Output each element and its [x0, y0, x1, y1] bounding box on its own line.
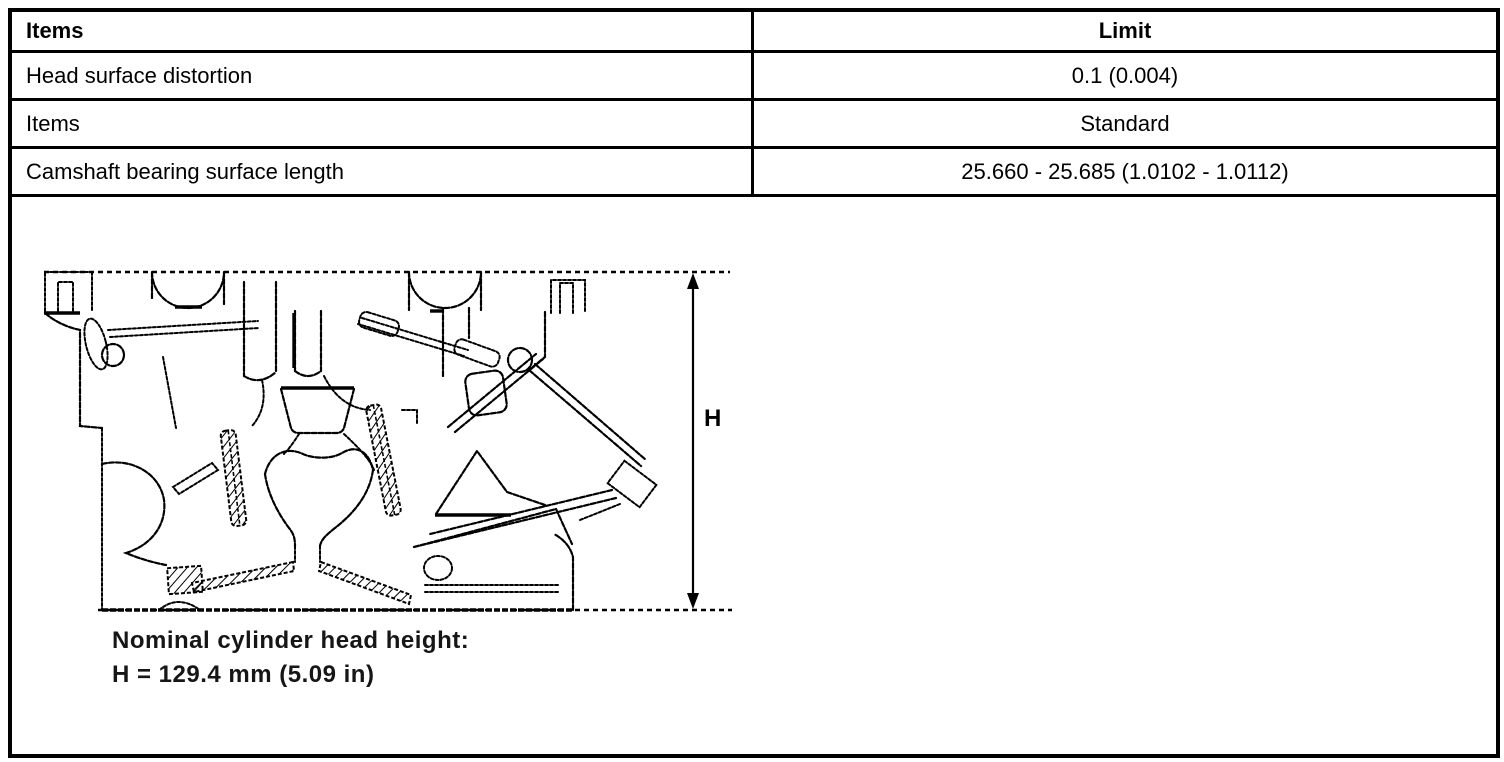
cylinder-head-cross-section-drawing: H [40, 258, 750, 620]
left-bracket [45, 272, 92, 311]
height-dimension: H [687, 273, 721, 609]
runner-outline [414, 509, 573, 610]
valve-guide-left [220, 430, 247, 527]
right-bracket-slot [560, 283, 573, 313]
dimension-arrow-down-icon [687, 593, 699, 609]
table-row: Items Standard [12, 101, 1496, 149]
lower-port-left [167, 566, 203, 594]
valve-guide-right [365, 404, 401, 517]
table-cell-value: Standard [754, 101, 1496, 146]
chamber-rim [265, 449, 373, 474]
guide-step [402, 410, 417, 424]
port-outer-wall [529, 364, 646, 466]
chamber-walls [265, 470, 373, 546]
tappet-bore [281, 389, 354, 433]
table-row: Head surface distortion 0.1 (0.004) [12, 53, 1496, 101]
spring-pocket-right [409, 272, 481, 310]
runner-boss [424, 556, 452, 580]
table-cell-item: Head surface distortion [12, 53, 754, 98]
left-profile [45, 313, 102, 428]
valve-throat [295, 546, 320, 562]
right-bracket [551, 280, 585, 313]
table-header-limit: Limit [754, 12, 1496, 50]
valve-seat-left [192, 562, 294, 592]
bolt-hole-left [102, 344, 124, 366]
runner-floor [425, 585, 558, 592]
oil-passage-right [453, 338, 502, 369]
plug-tube-right [295, 311, 321, 376]
table-cell-item: Camshaft bearing surface length [12, 149, 754, 194]
dimension-arrow-up-icon [687, 273, 699, 289]
caption-line-2: H = 129.4 mm (5.09 in) [112, 658, 469, 692]
water-jacket-sliver [173, 463, 218, 494]
plug-tube-left [244, 282, 276, 380]
upper-rib-right [358, 318, 468, 356]
spring-pocket-left [152, 272, 224, 308]
spec-table: Items Limit Head surface distortion 0.1 … [12, 12, 1496, 197]
left-bracket-slot [58, 282, 73, 311]
figure-caption: Nominal cylinder head height: H = 129.4 … [112, 624, 469, 692]
table-cell-value: 25.660 - 25.685 (1.0102 - 1.0112) [754, 149, 1496, 194]
caption-line-1: Nominal cylinder head height: [112, 624, 469, 658]
valve-seat-right [319, 562, 411, 604]
manual-page: { "colors": { "ink": "#000000", "bg": "#… [0, 0, 1504, 762]
table-row: Camshaft bearing surface length 25.660 -… [12, 149, 1496, 197]
chamber-wall-left [102, 462, 166, 565]
table-header-items: Items [12, 12, 754, 50]
table-subheader-items: Items [12, 101, 754, 146]
upper-rib-left [108, 321, 259, 337]
rib-web [436, 451, 545, 514]
table-row: Items Limit [12, 12, 1496, 53]
dimension-label: H [704, 405, 721, 432]
table-cell-value: 0.1 (0.004) [754, 53, 1496, 98]
port-flange-stub [608, 461, 657, 507]
page-border-frame: Items Limit Head surface distortion 0.1 … [8, 8, 1500, 758]
cylinder-head-figure: H [40, 258, 750, 620]
